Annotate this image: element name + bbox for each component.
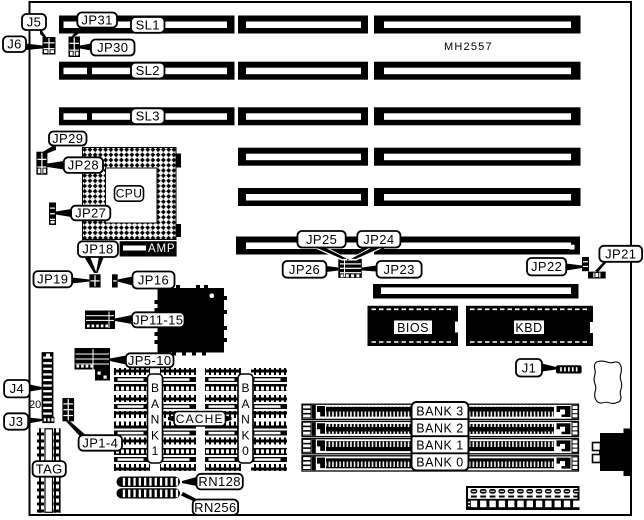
svg-text:KBD: KBD — [515, 321, 542, 335]
svg-text:B: B — [151, 381, 159, 395]
svg-text:RN128: RN128 — [198, 474, 240, 489]
svg-text:AMP: AMP — [148, 243, 175, 255]
svg-text:JP30: JP30 — [97, 40, 128, 55]
svg-text:BANK 2: BANK 2 — [416, 421, 463, 435]
svg-text:CPU: CPU — [116, 187, 143, 201]
svg-text:A: A — [241, 397, 249, 411]
svg-text:MH2557: MH2557 — [444, 41, 493, 53]
svg-text:0: 0 — [242, 444, 249, 458]
svg-text:A: A — [151, 397, 159, 411]
svg-text:JP19: JP19 — [37, 272, 68, 287]
svg-text:JP18: JP18 — [82, 242, 113, 257]
svg-text:N: N — [151, 413, 160, 427]
svg-text:J6: J6 — [7, 37, 22, 52]
svg-text:J4: J4 — [10, 381, 25, 396]
svg-text:JP23: JP23 — [383, 262, 414, 277]
svg-text:JP25: JP25 — [306, 232, 337, 247]
svg-text:JP28: JP28 — [68, 158, 99, 173]
svg-text:JP22: JP22 — [531, 259, 562, 274]
svg-text:JP31: JP31 — [82, 13, 113, 28]
svg-text:BANK 3: BANK 3 — [416, 404, 463, 418]
svg-text:SL3: SL3 — [136, 109, 160, 124]
svg-text:K: K — [151, 428, 159, 442]
svg-text:RN256: RN256 — [194, 500, 236, 515]
svg-text:J1: J1 — [522, 360, 537, 375]
svg-text:TAG: TAG — [36, 461, 63, 476]
svg-text:BIOS: BIOS — [397, 321, 429, 335]
svg-text:J3: J3 — [9, 414, 24, 429]
svg-text:J5: J5 — [27, 15, 42, 30]
svg-text:CACHE: CACHE — [176, 412, 224, 426]
svg-text:20: 20 — [29, 399, 41, 411]
svg-text:1: 1 — [152, 444, 159, 458]
svg-text:SL1: SL1 — [136, 17, 160, 32]
svg-text:K: K — [241, 428, 249, 442]
svg-text:JP27: JP27 — [75, 206, 106, 221]
svg-text:BANK 1: BANK 1 — [416, 439, 463, 453]
svg-text:BANK 0: BANK 0 — [416, 456, 463, 470]
svg-text:JP29: JP29 — [52, 131, 83, 146]
svg-text:JP1-4: JP1-4 — [82, 435, 118, 450]
svg-text:JP26: JP26 — [289, 262, 320, 277]
svg-text:JP16: JP16 — [138, 273, 169, 288]
svg-text:SL2: SL2 — [136, 63, 160, 78]
svg-text:JP5-10: JP5-10 — [128, 353, 172, 368]
svg-text:JP24: JP24 — [363, 232, 394, 247]
svg-text:JP21: JP21 — [605, 246, 636, 261]
svg-text:N: N — [241, 413, 250, 427]
svg-text:JP11-15: JP11-15 — [133, 312, 183, 327]
svg-text:B: B — [241, 381, 249, 395]
